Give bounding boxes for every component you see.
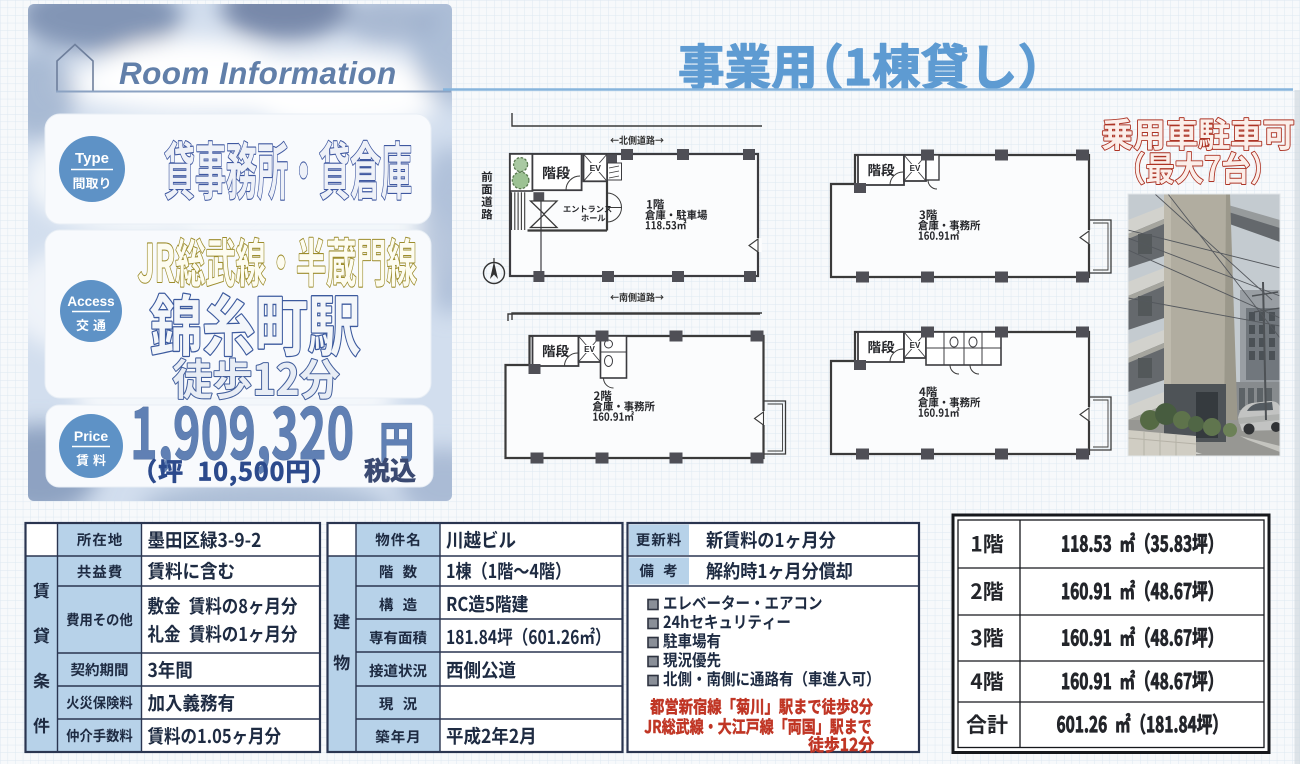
svg-text:EV: EV: [910, 164, 921, 173]
svg-text:Room Information: Room Information: [119, 55, 397, 91]
svg-text:Access: Access: [67, 294, 114, 309]
svg-text:Price: Price: [74, 428, 108, 444]
svg-text:EV: EV: [910, 341, 921, 350]
svg-text:EV: EV: [590, 163, 602, 173]
svg-text:EV: EV: [584, 345, 595, 354]
svg-text:Type: Type: [75, 150, 109, 167]
